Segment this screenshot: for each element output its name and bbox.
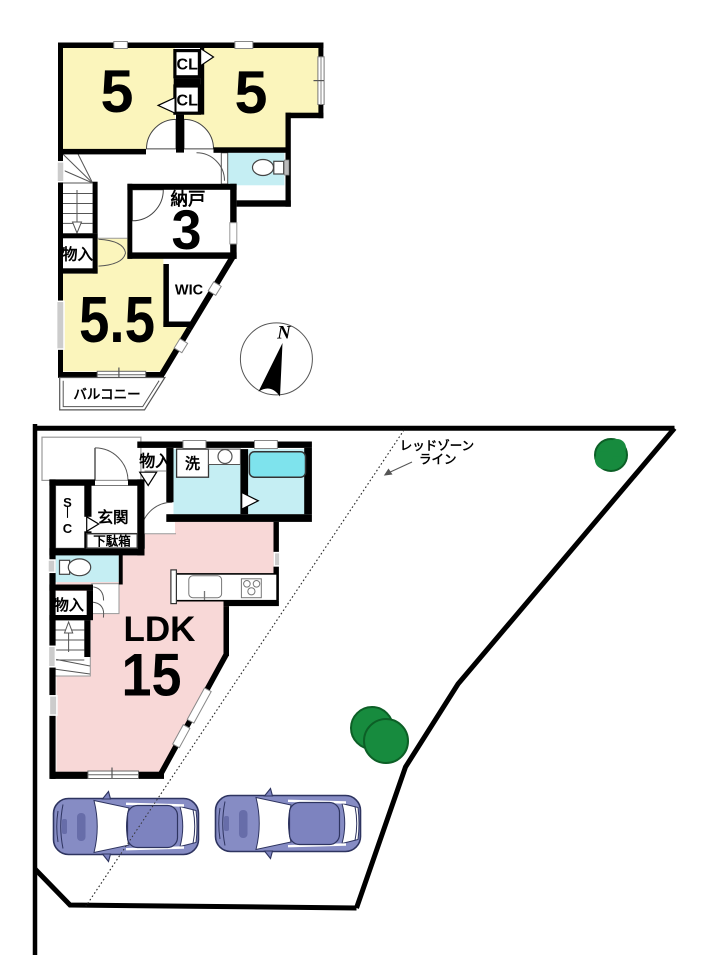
svg-text:バルコニー: バルコニー bbox=[73, 387, 140, 402]
svg-text:下駄箱: 下駄箱 bbox=[93, 533, 131, 548]
svg-text:洗: 洗 bbox=[185, 455, 200, 473]
svg-text:C: C bbox=[63, 521, 73, 536]
svg-text:物入: 物入 bbox=[54, 596, 84, 614]
svg-text:CL: CL bbox=[177, 57, 199, 74]
svg-text:︱: ︱ bbox=[61, 505, 74, 520]
svg-text:レッドゾーン: レッドゾーン bbox=[400, 438, 474, 453]
svg-text:ライン: ライン bbox=[419, 453, 457, 467]
svg-text:玄関: 玄関 bbox=[97, 508, 128, 527]
svg-text:5: 5 bbox=[235, 59, 268, 126]
svg-text:N: N bbox=[276, 323, 292, 344]
svg-text:5.5: 5.5 bbox=[79, 283, 155, 356]
svg-text:物入: 物入 bbox=[62, 245, 94, 264]
svg-text:物入: 物入 bbox=[139, 452, 171, 471]
svg-text:15: 15 bbox=[122, 642, 182, 709]
svg-text:3: 3 bbox=[172, 198, 202, 261]
svg-text:5: 5 bbox=[101, 58, 134, 125]
svg-text:WIC: WIC bbox=[175, 283, 204, 299]
svg-text:CL: CL bbox=[177, 93, 199, 110]
